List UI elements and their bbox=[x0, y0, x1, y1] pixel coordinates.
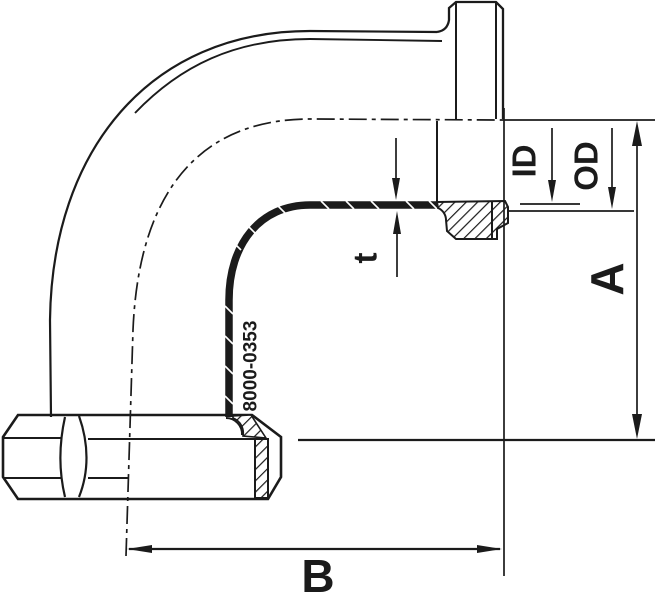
label-a: A bbox=[581, 262, 633, 295]
a-arrowhead-top bbox=[632, 121, 642, 146]
label-t: t bbox=[347, 253, 384, 264]
t-upper-arrowhead bbox=[392, 178, 400, 200]
od-arrowhead bbox=[608, 187, 616, 209]
dimensions: ID OD t A B bbox=[127, 108, 655, 602]
b-arrowhead-right bbox=[477, 545, 502, 553]
liner-weld-section bbox=[233, 415, 266, 438]
centerlines bbox=[126, 119, 500, 556]
part-number: 8000-0353 bbox=[241, 321, 262, 412]
male-ferrule-section bbox=[437, 201, 508, 239]
a-arrowhead-bottom bbox=[632, 414, 642, 439]
centerline-dashdot bbox=[126, 119, 500, 556]
t-lower-arrowhead bbox=[393, 211, 401, 234]
id-arrowhead bbox=[548, 180, 556, 202]
hex-nut bbox=[3, 415, 281, 499]
dimension-b: B bbox=[127, 108, 504, 602]
hex-nut-outline bbox=[3, 415, 281, 499]
label-od: OD bbox=[568, 141, 605, 191]
b-arrowhead-left bbox=[127, 545, 152, 553]
hex-corner-band-left bbox=[61, 417, 66, 497]
label-id: ID bbox=[506, 145, 543, 178]
hex-corner-band-right bbox=[79, 416, 87, 497]
elbow-technical-drawing: ID OD t A B 8000-0353 bbox=[0, 0, 660, 603]
label-b: B bbox=[301, 550, 334, 602]
male-flange-outline bbox=[437, 2, 503, 119]
tube-bore-line bbox=[135, 39, 442, 113]
liner-skirt-section bbox=[255, 439, 268, 498]
dimension-id-od: ID OD bbox=[506, 128, 635, 211]
drawing-canvas: ID OD t A B 8000-0353 bbox=[0, 0, 660, 603]
